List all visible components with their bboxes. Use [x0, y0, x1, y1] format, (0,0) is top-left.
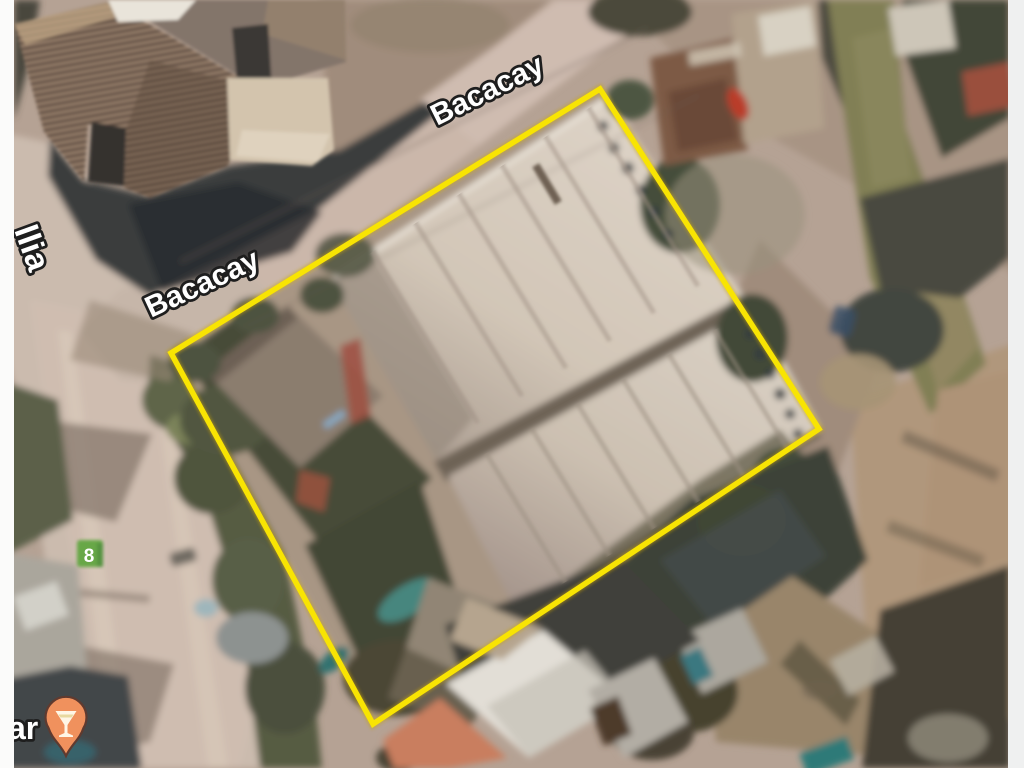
svg-text:8: 8 [84, 546, 95, 567]
